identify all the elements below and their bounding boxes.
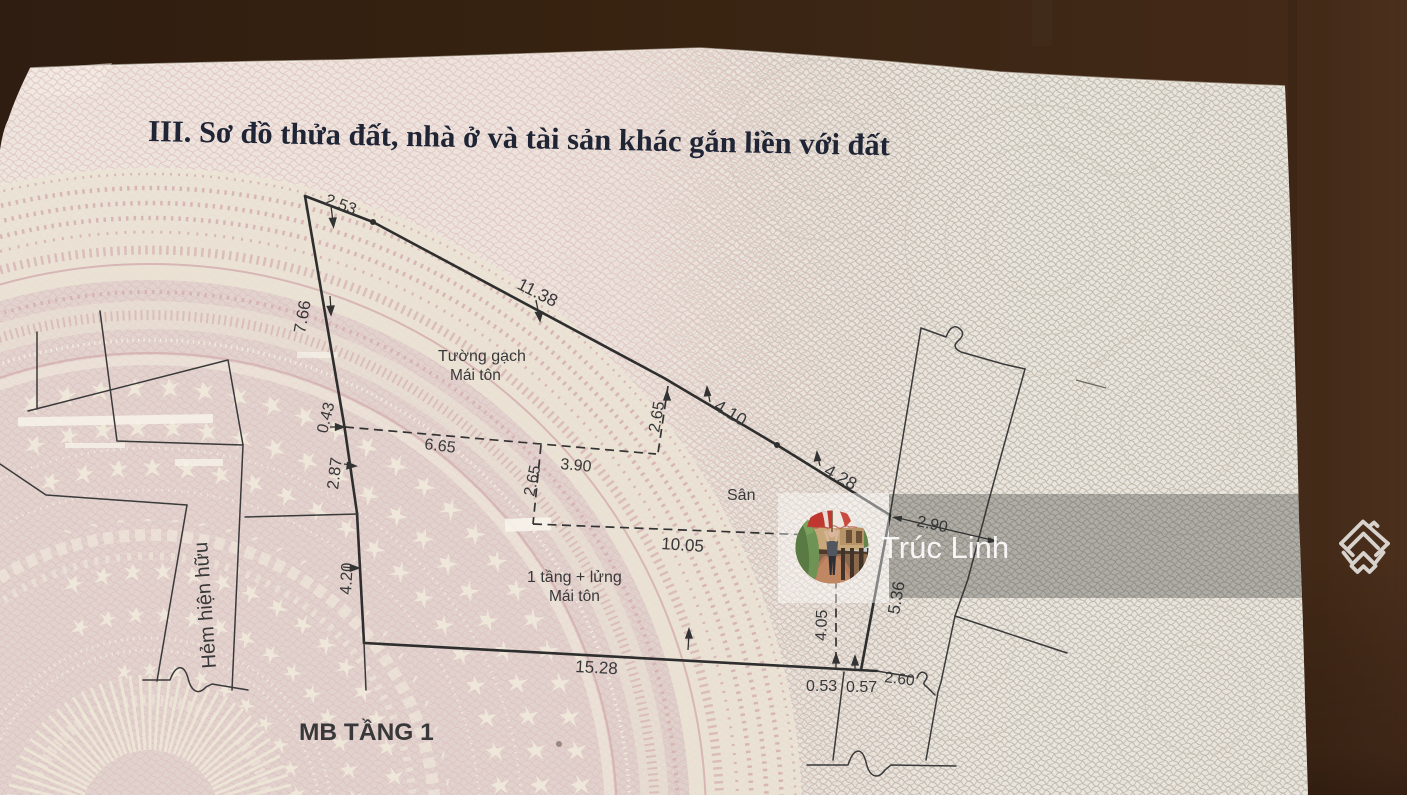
svg-text:0.57: 0.57 [846, 679, 877, 696]
svg-text:Sân: Sân [727, 487, 755, 504]
svg-text:0.53: 0.53 [806, 678, 837, 695]
svg-text:Tường gạch: Tường gạch [438, 348, 526, 365]
svg-text:Trúc Linh: Trúc Linh [881, 530, 1009, 565]
svg-text:MB TẦNG 1: MB TẦNG 1 [299, 718, 434, 746]
svg-text:1 tầng + lửng: 1 tầng + lửng [527, 569, 622, 586]
svg-text:4.20: 4.20 [337, 562, 357, 595]
svg-text:3.90: 3.90 [560, 456, 593, 476]
svg-text:Mái tôn: Mái tôn [549, 588, 600, 605]
svg-text:10.05: 10.05 [661, 534, 705, 556]
svg-text:15.28: 15.28 [575, 657, 618, 678]
svg-text:Mái tôn: Mái tôn [450, 367, 501, 384]
svg-text:4.05: 4.05 [813, 609, 831, 641]
